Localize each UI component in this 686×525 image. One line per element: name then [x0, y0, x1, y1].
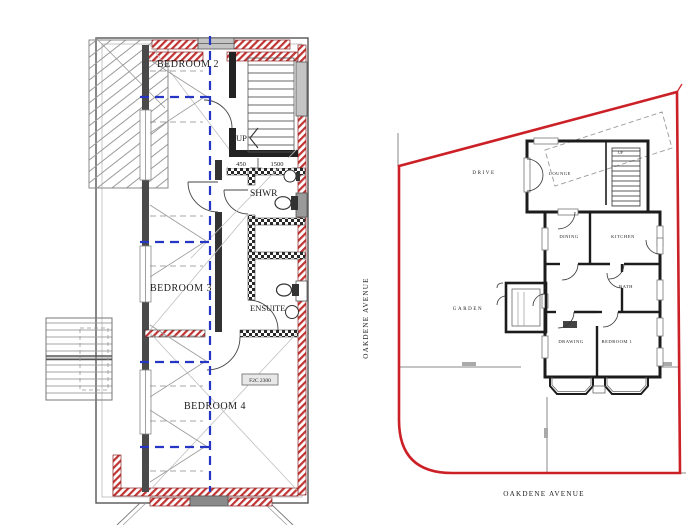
- label-shwr: SHWR: [250, 189, 278, 199]
- dimension-1500: 1500: [271, 161, 284, 168]
- area-label-drive: DRIVE: [472, 171, 495, 176]
- room-label-kitchen: KITCHEN: [611, 234, 635, 239]
- label-ensuite: ENSUITE: [250, 303, 285, 313]
- street-label-bottom: OAKDENE AVENUE: [503, 490, 585, 498]
- side-deck: [46, 318, 112, 400]
- site-plan: DRIVE GARDEN LOUNGE UP DINING KITCHEN BA…: [362, 84, 686, 498]
- plan-sheet: 450 1500 F2C 2300 BEDROOM 2 UP SHWR BEDR…: [0, 0, 686, 525]
- first-floor-plan: 450 1500 F2C 2300 BEDROOM 2 UP SHWR BEDR…: [46, 36, 308, 525]
- label-up: UP: [236, 133, 247, 143]
- stairs: [248, 58, 294, 152]
- note-f2c: F2C 2300: [249, 378, 271, 384]
- room-label-drawing: DRAWING: [558, 339, 584, 344]
- note-box: F2C 2300: [242, 374, 278, 385]
- room-label-bedroom4: BEDROOM 4: [184, 401, 246, 412]
- site-stairs: [612, 148, 640, 206]
- street-label-vertical: OAKDENE AVENUE: [362, 277, 370, 359]
- room-label-dining: DINING: [559, 234, 579, 239]
- drawing-canvas: 450 1500 F2C 2300 BEDROOM 2 UP SHWR BEDR…: [0, 0, 686, 525]
- room-label-bedroom3: BEDROOM 3: [150, 283, 212, 294]
- bay-windows: [550, 377, 648, 394]
- area-label-garden: GARDEN: [453, 307, 483, 312]
- room-label-bath: BATH: [619, 284, 633, 289]
- room-label-bedroom1: BEDROOM 1: [602, 339, 633, 344]
- room-label-lounge: LOUNGE: [549, 171, 571, 176]
- label-up-site: UP: [618, 151, 623, 155]
- room-label-bedroom2: BEDROOM 2: [157, 59, 219, 70]
- dimension-450: 450: [236, 161, 246, 168]
- porch: [497, 283, 546, 332]
